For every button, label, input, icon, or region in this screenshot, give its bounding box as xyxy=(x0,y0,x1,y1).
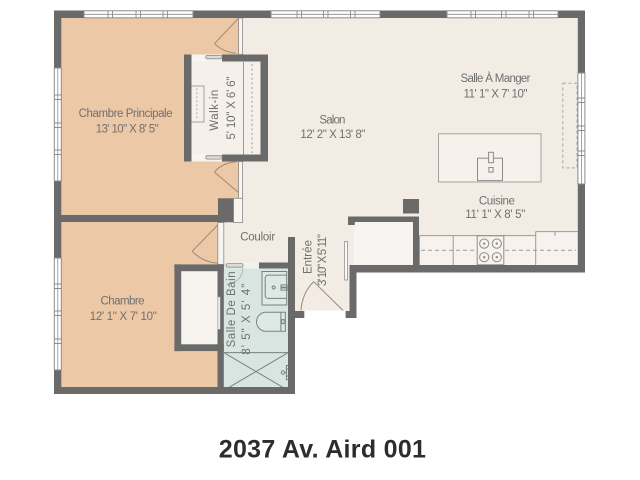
svg-text:Chambre Principale: Chambre Principale xyxy=(79,108,173,120)
svg-text:Chambre: Chambre xyxy=(101,296,145,308)
svg-text:2037 Av. Aird 001: 2037 Av. Aird 001 xyxy=(219,436,427,464)
svg-text:Couloir: Couloir xyxy=(240,232,275,244)
svg-text:Cuisine: Cuisine xyxy=(479,196,515,208)
svg-text:11' 1" X 8' 5": 11' 1" X 8' 5" xyxy=(465,209,525,221)
svg-text:Salle De Bain: Salle De Bain xyxy=(226,271,238,347)
svg-text:Entrée: Entrée xyxy=(302,240,314,274)
svg-text:11' 1" X 7' 10": 11' 1" X 7' 10" xyxy=(464,88,528,100)
svg-text:5' 10" X 6' 6": 5' 10" X 6' 6" xyxy=(226,77,238,140)
svg-text:Salon: Salon xyxy=(319,115,345,127)
svg-text:12' 2" X 13' 8": 12' 2" X 13' 8" xyxy=(300,129,365,141)
svg-text:8' 5" X 5' 4": 8' 5" X 5' 4" xyxy=(241,284,253,355)
svg-text:Salle À Manger: Salle À Manger xyxy=(461,72,531,85)
svg-text:13' 10" X 8' 5": 13' 10" X 8' 5" xyxy=(96,124,159,136)
svg-text:3' 10" X 5' 11": 3' 10" X 5' 11" xyxy=(317,234,329,286)
svg-text:Walk-in: Walk-in xyxy=(209,90,221,131)
svg-text:12' 1" X 7' 10": 12' 1" X 7' 10" xyxy=(90,311,157,323)
